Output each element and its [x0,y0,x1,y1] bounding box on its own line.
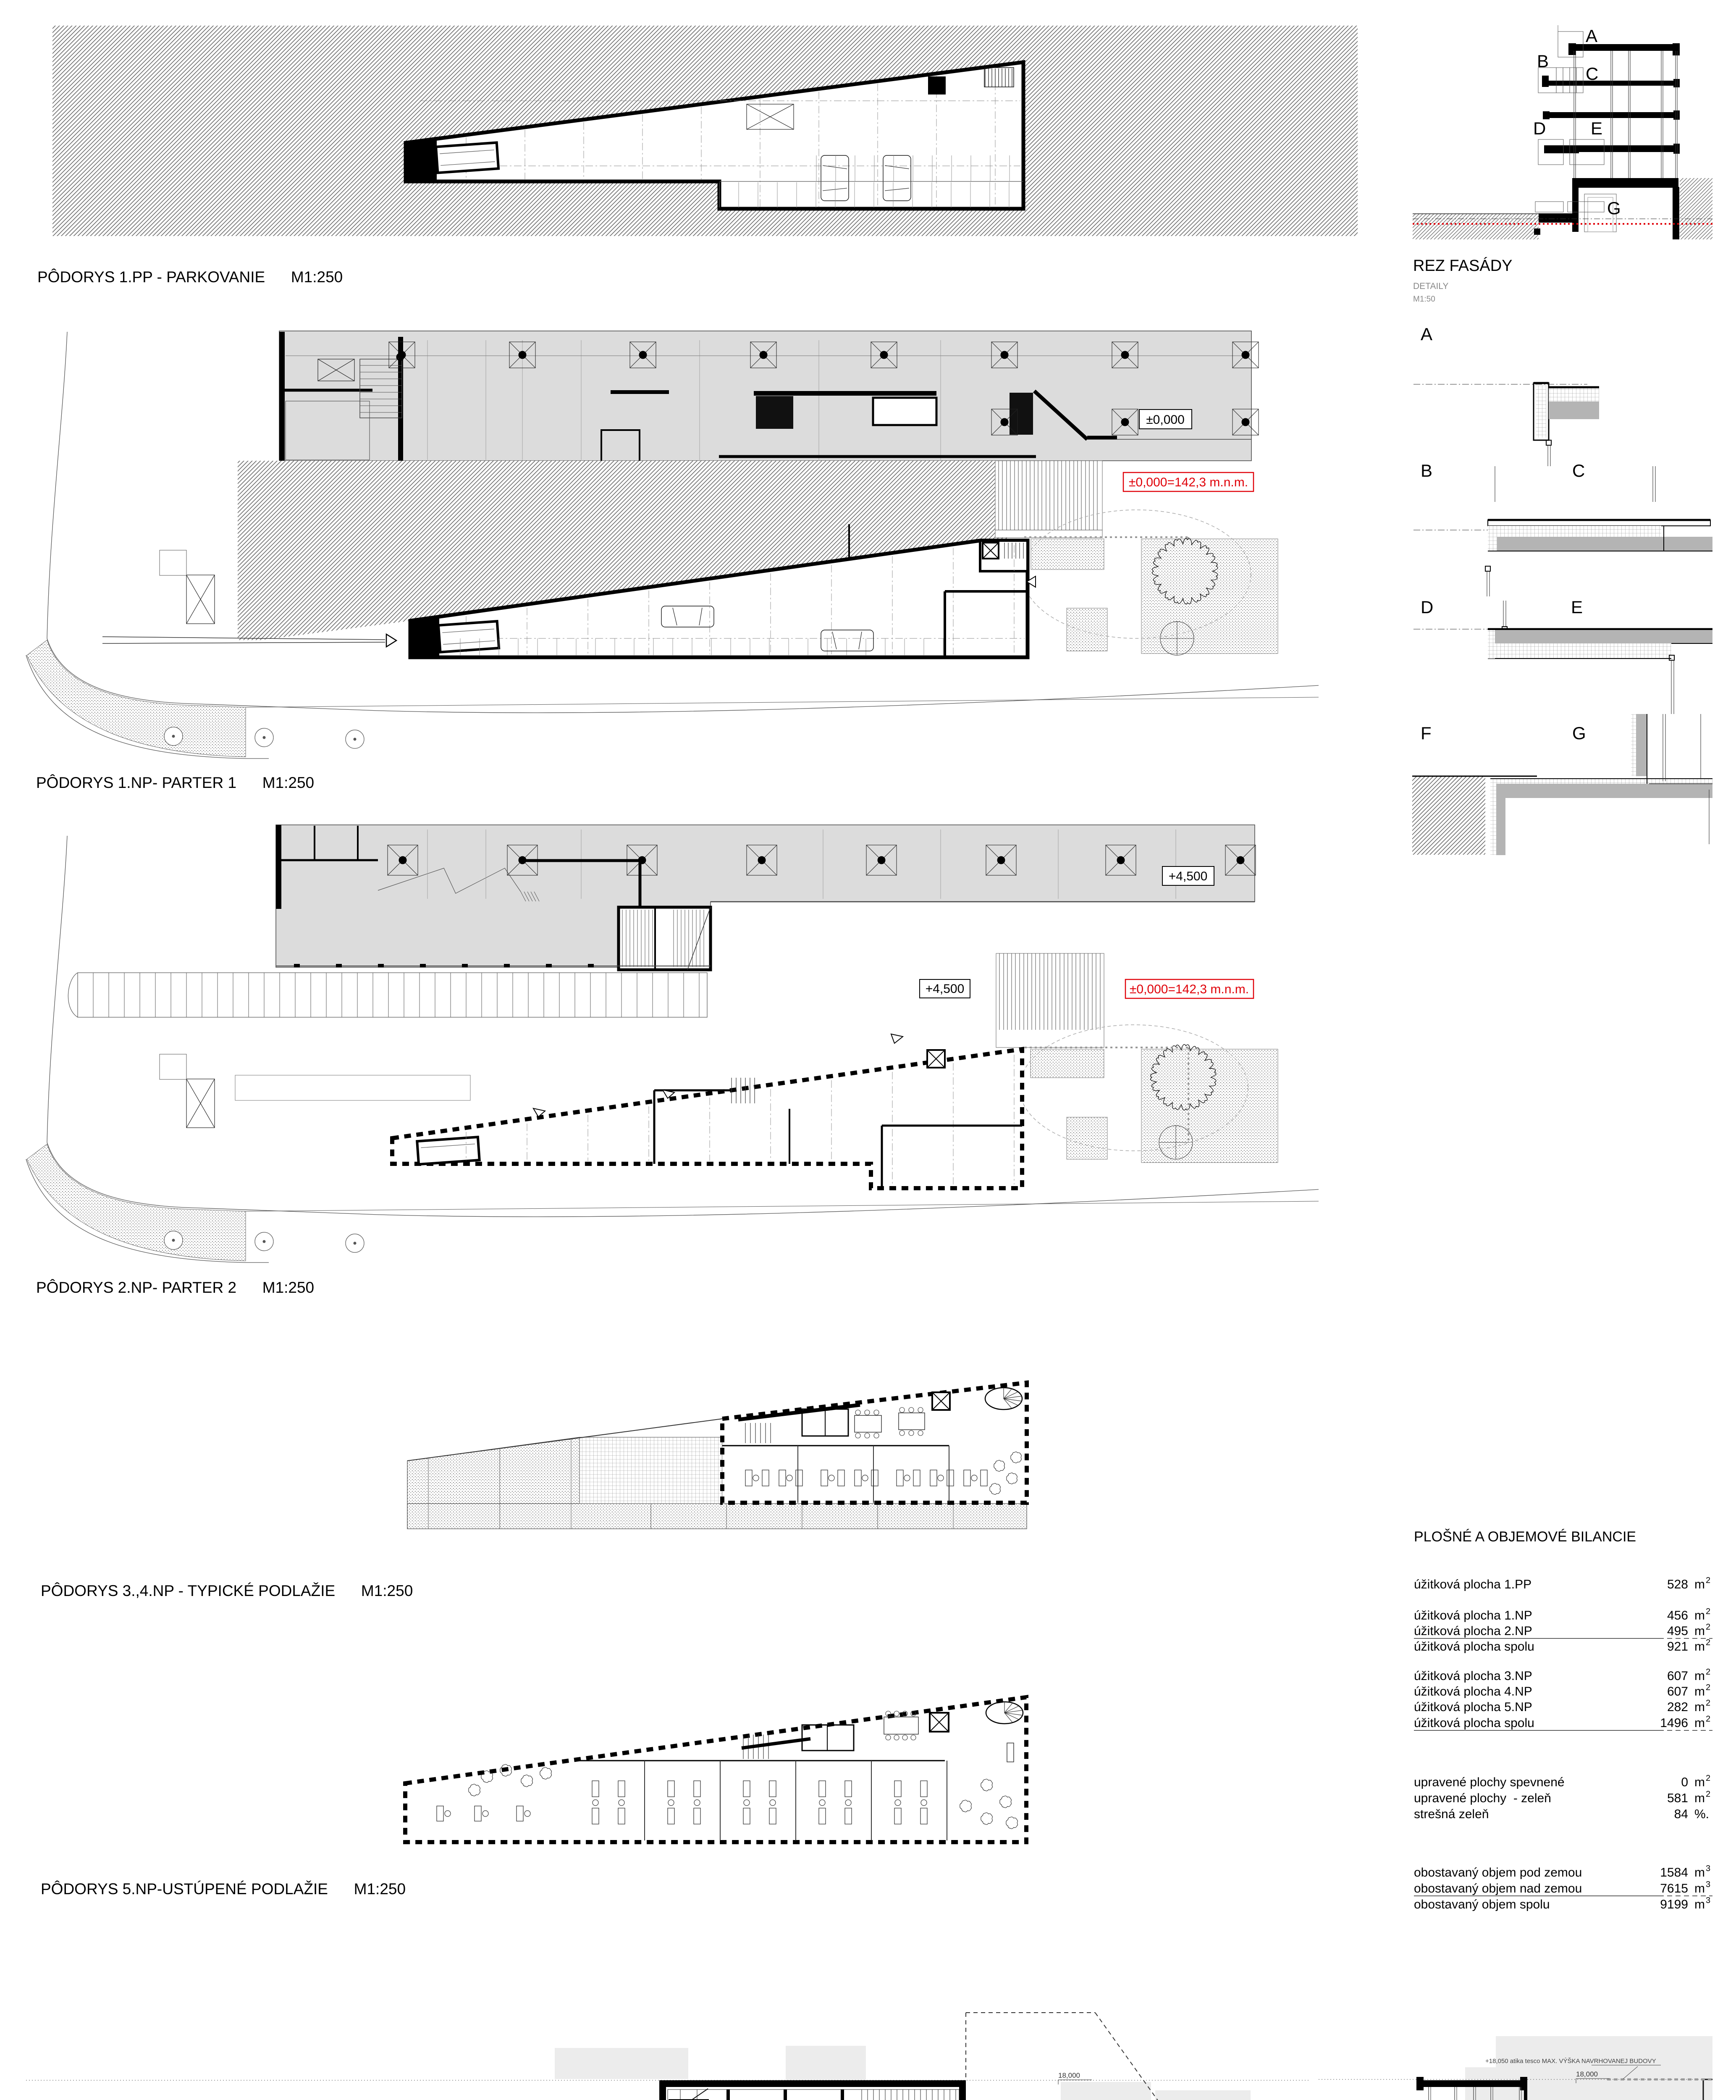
svg-text:2: 2 [1706,1790,1710,1799]
svg-text:úžitková plocha spolu: úžitková plocha spolu [1414,1716,1534,1730]
svg-text:84: 84 [1674,1807,1688,1821]
svg-text:D: D [1533,118,1546,138]
svg-text:+4,500: +4,500 [926,982,965,996]
svg-text:m: m [1694,1700,1705,1714]
svg-text:18,000: 18,000 [1576,2070,1598,2078]
svg-text:DETAILY: DETAILY [1413,281,1448,291]
svg-text:528: 528 [1667,1578,1688,1591]
svg-text:obostavaný objem spolu: obostavaný objem spolu [1414,1898,1550,1911]
svg-text:282: 282 [1667,1700,1688,1714]
svg-text:M1:50: M1:50 [1413,295,1435,304]
svg-text:úžitková plocha 3.NP: úžitková plocha 3.NP [1414,1669,1532,1683]
svg-text:m: m [1694,1866,1705,1879]
svg-text:±0,000=142,3 m.n.m.: ±0,000=142,3 m.n.m. [1129,475,1248,489]
svg-text:C: C [1572,461,1585,480]
svg-text:2: 2 [1706,1698,1710,1708]
svg-text:A: A [1586,26,1597,46]
svg-text:REZ FASÁDY: REZ FASÁDY [1413,257,1513,275]
svg-text:obostavaný objem pod zemou: obostavaný objem pod zemou [1414,1866,1582,1879]
svg-text:E: E [1591,118,1602,138]
svg-text:C: C [1586,64,1598,84]
svg-text:2: 2 [1706,1622,1710,1632]
svg-text:PLOŠNÉ A OBJEMOVÉ BILANCIE: PLOŠNÉ A OBJEMOVÉ BILANCIE [1414,1529,1636,1545]
svg-text:±0,000=142,3 m.n.m.: ±0,000=142,3 m.n.m. [1130,982,1249,996]
svg-text:upravené plochy - zeleň: upravené plochy - zeleň [1414,1791,1551,1805]
svg-text:2: 2 [1706,1667,1710,1677]
svg-text:A: A [1421,324,1432,344]
svg-text:+18,050 atika tesco MAX. VÝŠKA: +18,050 atika tesco MAX. VÝŠKA NAVRHOVAN… [1485,2058,1656,2065]
svg-text:m: m [1694,1685,1705,1698]
svg-text:2: 2 [1706,1638,1710,1647]
svg-text:607: 607 [1667,1685,1688,1698]
svg-text:3: 3 [1706,1896,1710,1905]
svg-text:456: 456 [1667,1609,1688,1622]
svg-text:0: 0 [1681,1775,1688,1789]
svg-text:2: 2 [1706,1607,1710,1616]
svg-text:PÔDORYS 2.NP- PARTER 2 M1: PÔDORYS 2.NP- PARTER 2 M1:250 [36,1279,314,1296]
svg-text:m: m [1694,1775,1705,1789]
svg-text:úžitková plocha 1.NP: úžitková plocha 1.NP [1414,1609,1532,1622]
svg-text:m: m [1694,1640,1705,1654]
svg-text:7615: 7615 [1660,1882,1688,1895]
svg-text:2: 2 [1706,1576,1710,1585]
svg-text:upravené plochy spevnené: upravené plochy spevnené [1414,1775,1565,1789]
svg-text:PÔDORYS 3.,4.NP - TYPICKÉ PODL: PÔDORYS 3.,4.NP - TYPICKÉ PODLAŽIE M1:25… [41,1582,413,1599]
svg-text:m: m [1694,1898,1705,1911]
svg-text:úžitková plocha 5.NP: úžitková plocha 5.NP [1414,1700,1532,1714]
svg-text:B: B [1537,51,1549,71]
svg-text:m: m [1694,1882,1705,1895]
svg-text:3: 3 [1706,1864,1710,1873]
svg-text:+4,500: +4,500 [1169,869,1208,883]
svg-text:2: 2 [1706,1683,1710,1692]
svg-text:obostavaný objem nad zemou: obostavaný objem nad zemou [1414,1882,1582,1895]
svg-text:D: D [1421,597,1433,617]
svg-text:%.: %. [1694,1807,1709,1821]
svg-text:18,000: 18,000 [1058,2071,1080,2079]
svg-text:921: 921 [1667,1640,1688,1654]
svg-text:PÔDORYS 5.NP-USTÚPENÉ PODLAŽIE: PÔDORYS 5.NP-USTÚPENÉ PODLAŽIE M1:250 [41,1880,406,1898]
svg-text:495: 495 [1667,1624,1688,1638]
svg-text:2: 2 [1706,1774,1710,1783]
svg-text:3: 3 [1706,1880,1710,1889]
svg-text:F: F [1421,723,1432,743]
svg-text:úžitková plocha 4.NP: úžitková plocha 4.NP [1414,1685,1532,1698]
svg-text:m: m [1694,1578,1705,1591]
svg-text:m: m [1694,1791,1705,1805]
svg-text:E: E [1571,597,1583,617]
svg-text:G: G [1572,723,1586,743]
svg-text:úžitková plocha spolu: úžitková plocha spolu [1414,1640,1534,1654]
svg-text:1496: 1496 [1660,1716,1688,1730]
svg-text:strešná zeleň: strešná zeleň [1414,1807,1489,1821]
svg-text:PÔDORYS 1.PP - PARKOVANIE: PÔDORYS 1.PP - PARKOVANIE M1:250 [37,268,343,286]
svg-text:±0,000: ±0,000 [1146,413,1185,427]
svg-text:PÔDORYS 1.NP- PARTER 1 M1: PÔDORYS 1.NP- PARTER 1 M1:250 [36,774,314,791]
svg-text:m: m [1694,1716,1705,1730]
svg-text:m: m [1694,1624,1705,1638]
svg-text:B: B [1421,461,1432,480]
svg-text:9199: 9199 [1660,1898,1688,1911]
svg-text:m: m [1694,1669,1705,1683]
svg-text:G: G [1607,198,1621,218]
svg-text:581: 581 [1667,1791,1688,1805]
svg-text:2: 2 [1706,1714,1710,1724]
svg-text:úžitková plocha 1.PP: úžitková plocha 1.PP [1414,1578,1531,1591]
svg-text:1584: 1584 [1660,1866,1688,1879]
svg-text:607: 607 [1667,1669,1688,1683]
svg-text:úžitková plocha 2.NP: úžitková plocha 2.NP [1414,1624,1532,1638]
svg-text:m: m [1694,1609,1705,1622]
